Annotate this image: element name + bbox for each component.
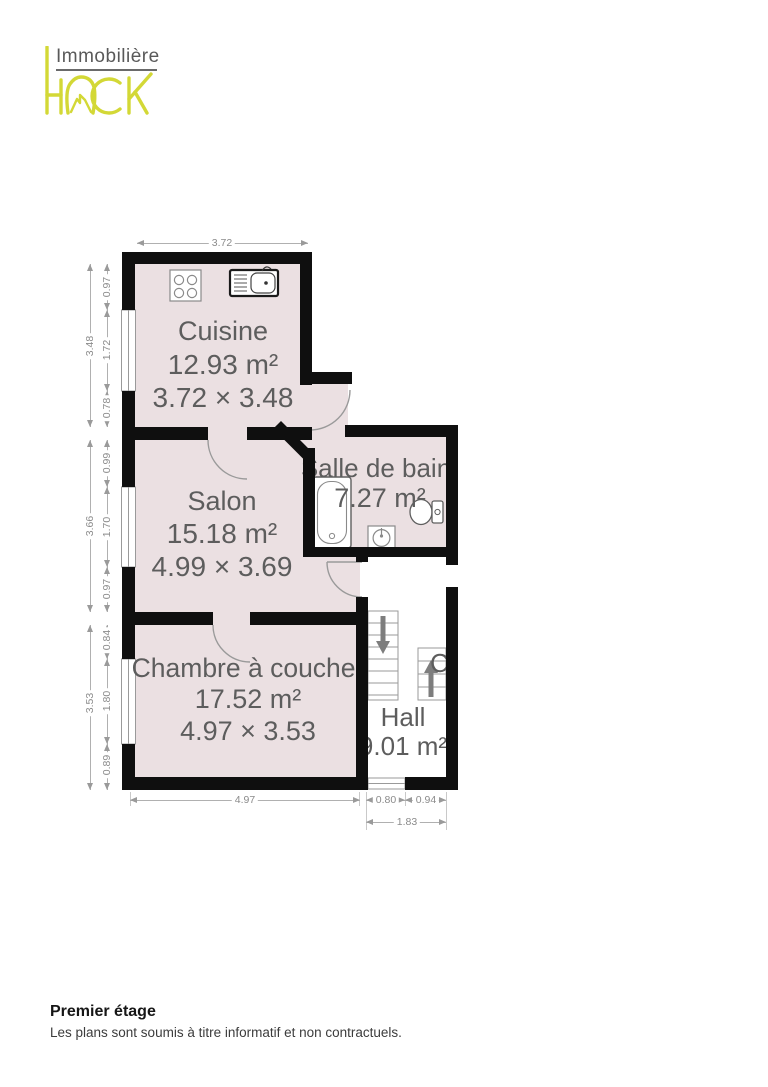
dim-cuisine-total: 3.48: [84, 333, 96, 359]
wall-right-lower: [446, 587, 458, 790]
wall-salon-chambre-a: [122, 612, 213, 625]
stove-icon: [170, 270, 201, 301]
salon-size: 4.99 × 3.69: [112, 551, 332, 583]
dim-salon-seg-3: 0.97: [101, 576, 113, 602]
dim-chambre-total: 3.53: [84, 690, 96, 716]
wall-bath-top: [345, 425, 458, 437]
dim-hall-seg-1: 0.80: [373, 794, 399, 806]
dim-chambre-seg-3: 0.89: [101, 752, 113, 778]
dim-salon-seg-2: 1.70: [101, 514, 113, 540]
dim-hall-seg-2: 0.94: [413, 794, 439, 806]
wall-hall-left-top: [356, 548, 368, 562]
kitchen-sink-icon: [230, 267, 278, 296]
dim-chambre-seg-1: 0.84: [101, 627, 113, 653]
wall-left-1: [122, 252, 135, 310]
wall-cuisine-right: [300, 252, 312, 385]
dim-cuisine-seg-3: 0.78: [101, 395, 113, 421]
floor-plan-page: Immobilière: [0, 0, 768, 1087]
dim-chambre-seg-2: 1.80: [101, 688, 113, 714]
dim-hall-total: 1.83: [394, 816, 420, 828]
wall-top: [122, 252, 312, 264]
wall-hall-bottom: [405, 777, 458, 790]
wall-chambre-bottom: [122, 777, 363, 790]
dim-salon-seg-1: 0.99: [101, 450, 113, 476]
chambre-area: 17.52 m²: [118, 684, 378, 715]
chambre-label: Chambre à coucher: [118, 653, 378, 684]
wall-hall-left-main: [356, 597, 368, 790]
dim-cuisine-seg-2: 1.72: [101, 337, 113, 363]
dim-chambre-width: 4.97: [232, 794, 258, 806]
wall-right-upper: [446, 425, 458, 565]
cuisine-size: 3.72 × 3.48: [113, 382, 333, 414]
dim-salon-total: 3.66: [84, 513, 96, 539]
dim-top-width: 3.72: [209, 237, 235, 249]
wall-bath-left: [303, 448, 315, 547]
entry-door-icon: [368, 778, 405, 789]
wall-salon-chambre-b: [250, 612, 356, 625]
wall-step: [300, 372, 352, 384]
dim-cuisine-seg-1: 0.97: [101, 274, 113, 300]
wall-cuisine-salon-a: [122, 427, 208, 440]
washbasin-icon: [368, 526, 395, 548]
salon-area: 15.18 m²: [112, 518, 332, 550]
wall-bath-bottom: [303, 547, 446, 557]
ext-line: [446, 792, 447, 830]
